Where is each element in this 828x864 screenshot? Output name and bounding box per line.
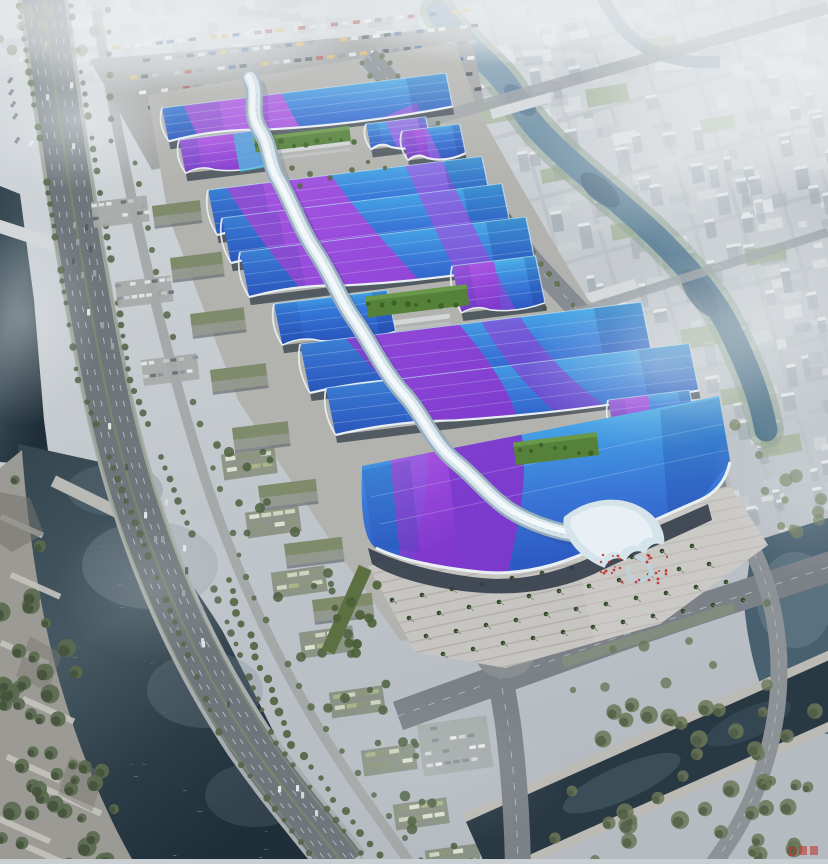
svg-text:D: D: [788, 844, 797, 859]
